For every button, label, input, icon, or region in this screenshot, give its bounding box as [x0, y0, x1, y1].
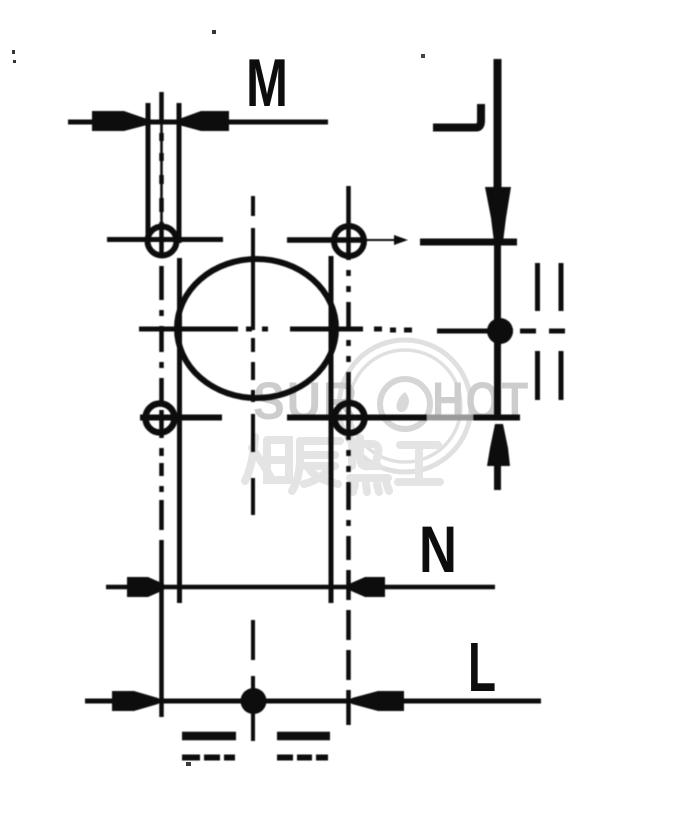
svg-text:L: L	[468, 628, 496, 706]
svg-text:HOT: HOT	[432, 372, 530, 431]
svg-text:N: N	[419, 512, 457, 586]
svg-text:M: M	[246, 45, 288, 121]
